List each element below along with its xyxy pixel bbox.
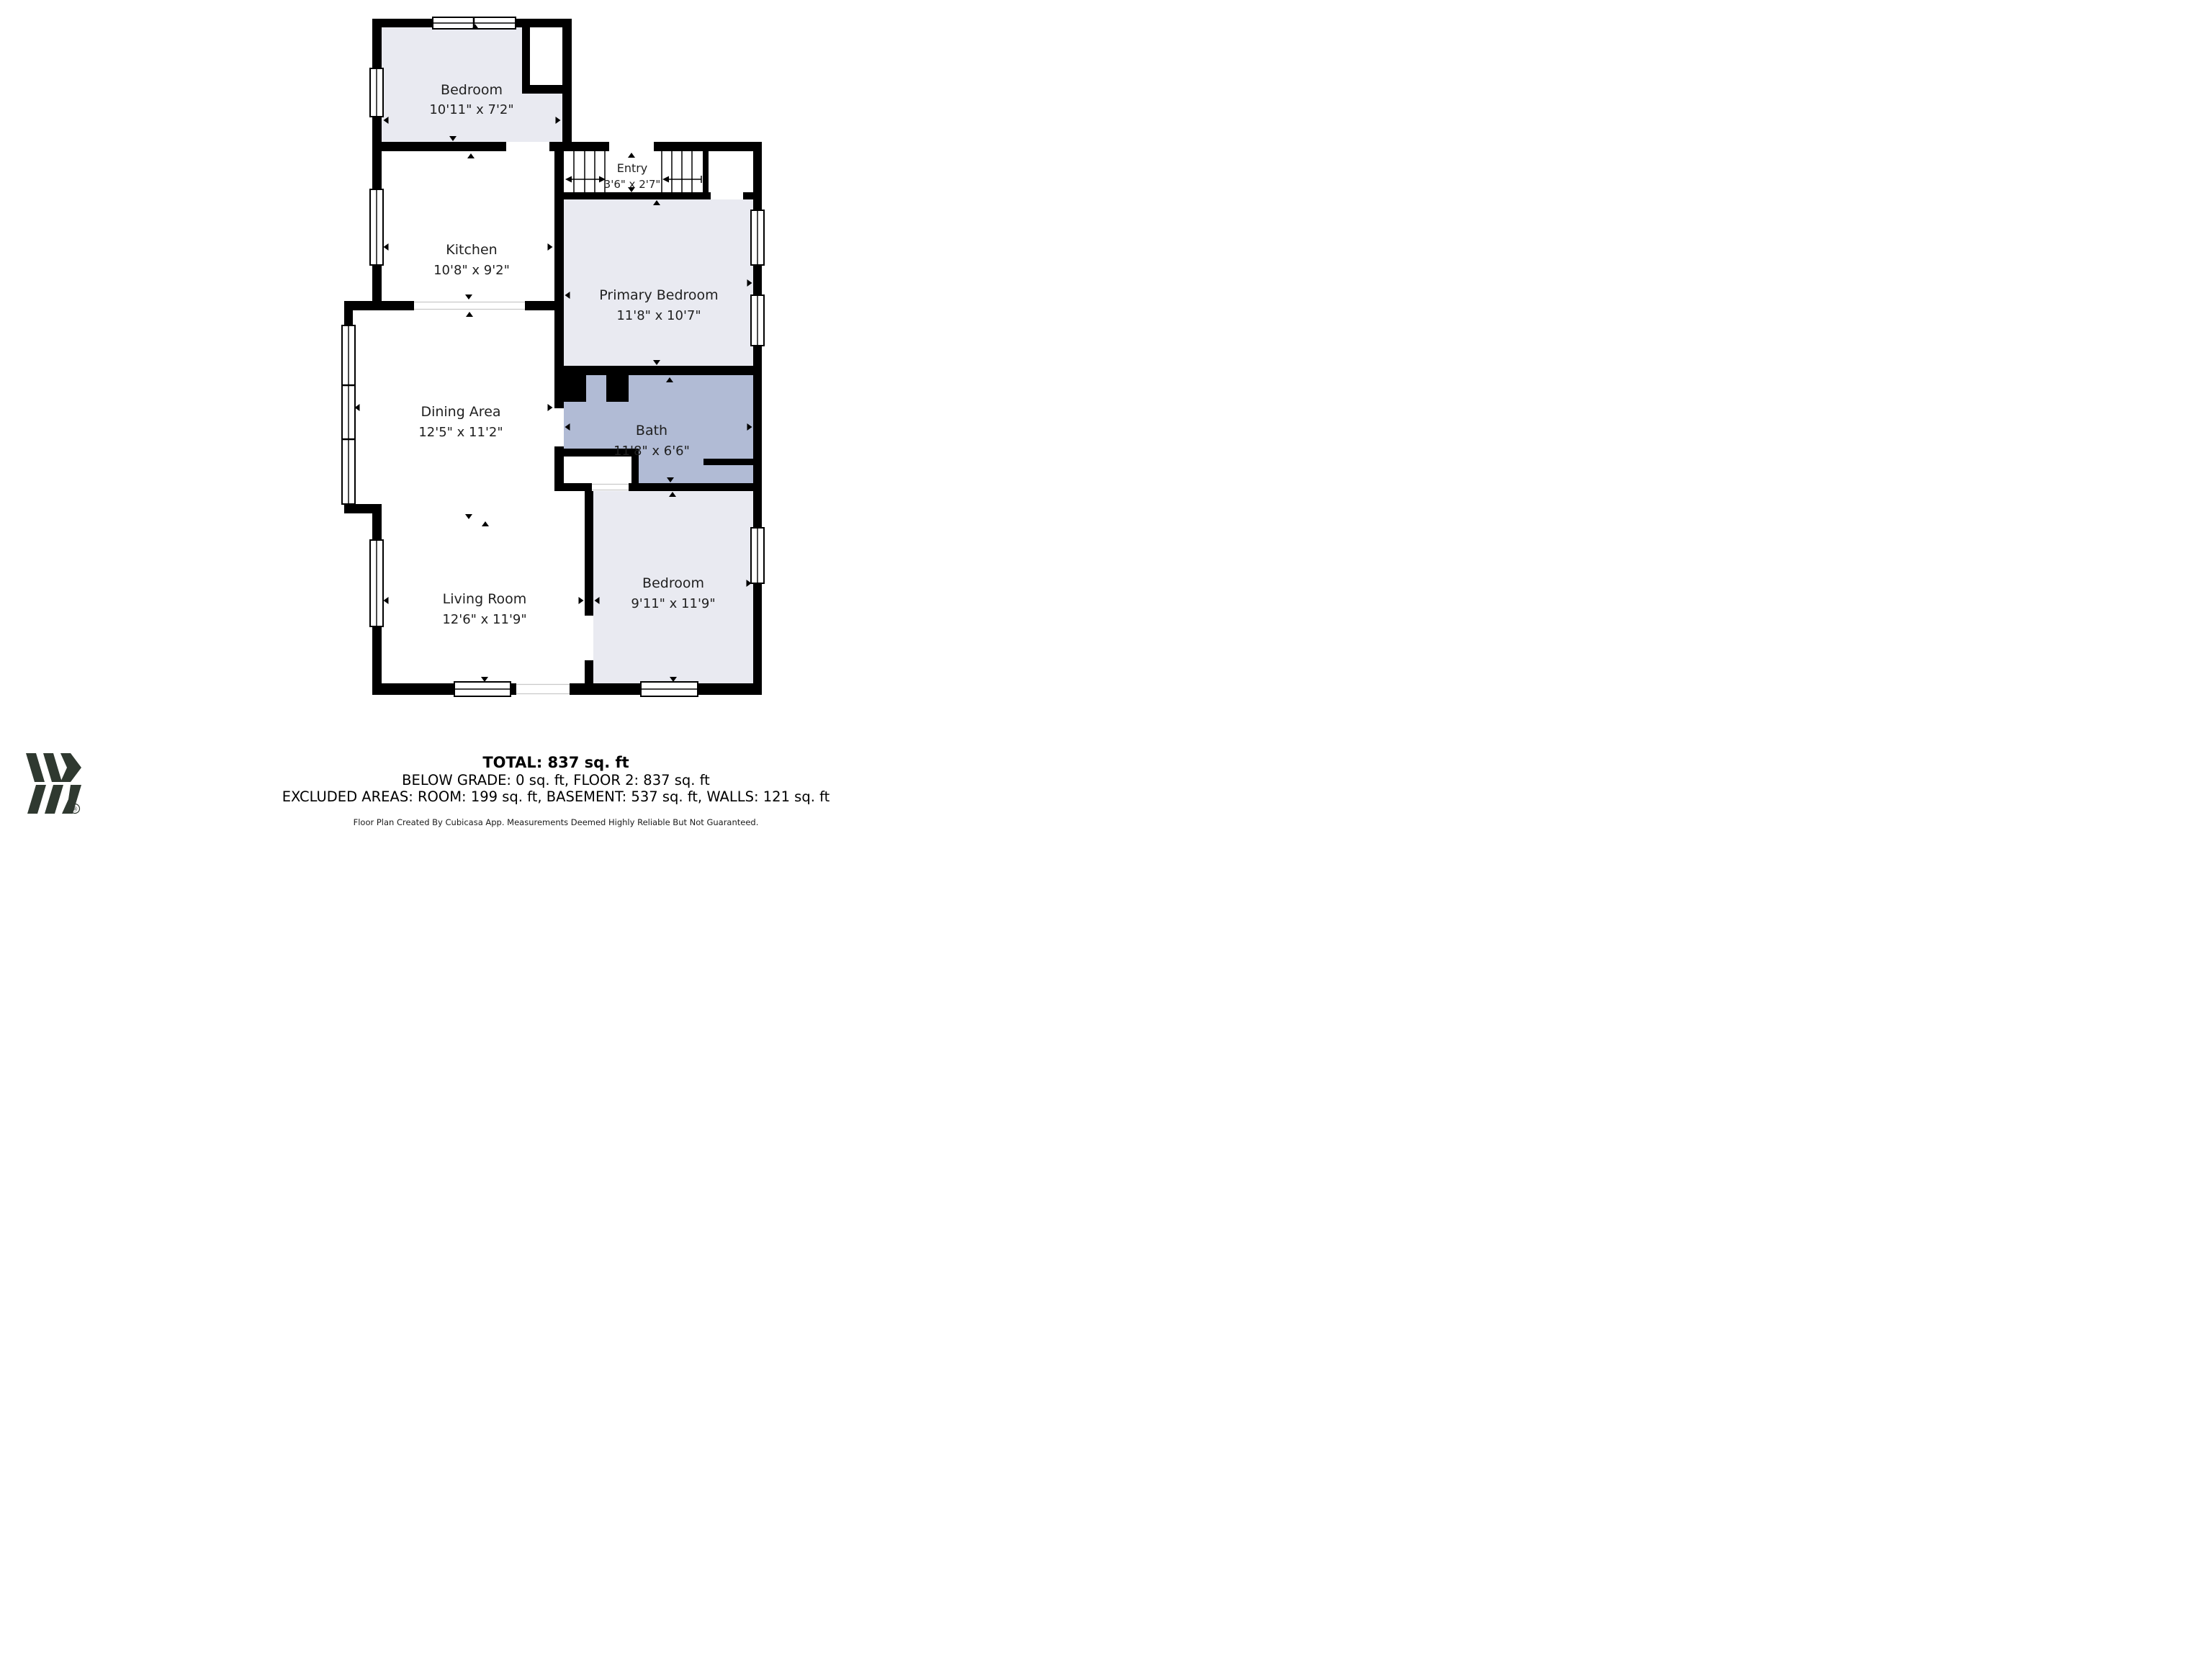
room-dims-dining-area: 12'5" x 11'2" [418, 425, 503, 440]
window-bedroom-top-west [370, 68, 383, 117]
room-floor-kitchen [382, 151, 554, 301]
room-dims-bedroom-bottom: 9'11" x 11'9" [631, 596, 715, 611]
window-primary-east-2 [751, 295, 764, 346]
opening-bottom-exterior [516, 683, 570, 695]
wall-dining-step [344, 504, 382, 513]
window-kitchen-west [370, 189, 383, 265]
room-dims-bath: 11'8" x 6'6" [613, 444, 690, 459]
wall-entry-closet-left [703, 142, 709, 199]
window-primary-east-1 [751, 210, 764, 265]
window-bedroom-bottom-south [641, 682, 698, 696]
disclaimer-text: Floor Plan Created By Cubicasa App. Meas… [354, 817, 759, 827]
wall-bath-stub [703, 459, 753, 465]
room-floor-closet-top [530, 27, 562, 85]
wall-bath-block-1 [564, 375, 586, 402]
room-dims-kitchen: 10'8" x 9'2" [433, 263, 510, 278]
window-dining-west [342, 325, 355, 504]
wall-bath-block-2 [606, 375, 629, 402]
room-label-kitchen: Kitchen [446, 242, 497, 258]
room-label-primary-bedroom: Primary Bedroom [599, 287, 718, 303]
room-label-dining-area: Dining Area [421, 404, 500, 420]
room-floor-entry-closet [709, 151, 753, 192]
door-gap-bedroom-top [506, 142, 549, 151]
window-living-south [454, 682, 511, 696]
wall-bath-nook-right [631, 457, 639, 483]
room-dims-living-room: 12'6" x 11'9" [442, 612, 526, 627]
summary-total: TOTAL: 837 sq. ft [482, 754, 629, 771]
summary-below-grade: BELOW GRADE: 0 sq. ft, FLOOR 2: 837 sq. … [402, 772, 710, 788]
room-label-entry: Entry [617, 161, 648, 175]
door-gap-bath [554, 408, 564, 446]
door-gap-front-door [609, 142, 654, 151]
room-dims-primary-bedroom: 11'8" x 10'7" [616, 308, 701, 323]
wall-closet-top-bottom [522, 85, 572, 94]
wall-closet-top-left [522, 27, 530, 94]
window-bedroom-bottom-east [751, 528, 764, 583]
window-living-west [370, 540, 383, 626]
cubicasa-logo: ® [26, 753, 81, 814]
room-label-bedroom-bottom: Bedroom [642, 575, 704, 591]
room-dims-entry: 3'6" x 2'7" [604, 178, 661, 191]
door-gap-primary-closet [711, 192, 743, 199]
door-gap-bedroom-bottom [585, 616, 593, 660]
room-label-living-room: Living Room [443, 591, 527, 607]
registered-mark: ® [72, 806, 78, 814]
room-dims-bedroom-top: 10'11" x 7'2" [429, 102, 513, 117]
summary-block: TOTAL: 837 sq. ft BELOW GRADE: 0 sq. ft,… [282, 754, 830, 827]
summary-excluded: EXCLUDED AREAS: ROOM: 199 sq. ft, BASEME… [282, 788, 830, 805]
wall-primary-bottom [554, 366, 753, 375]
room-label-bedroom-top: Bedroom [441, 82, 503, 98]
floor-plan-canvas: Bedroom 10'11" x 7'2" Entry 3'6" x 2'7" … [0, 0, 1106, 829]
room-floor-bath-nook [564, 457, 631, 483]
room-floor-primary-bedroom [564, 199, 753, 366]
room-floor-dining-living [353, 310, 585, 683]
wall-bath-bottom [554, 483, 762, 491]
room-label-bath: Bath [636, 423, 667, 439]
wall-right-bedroom-top [562, 19, 572, 142]
wall-living-bedroom-divider [585, 491, 593, 695]
